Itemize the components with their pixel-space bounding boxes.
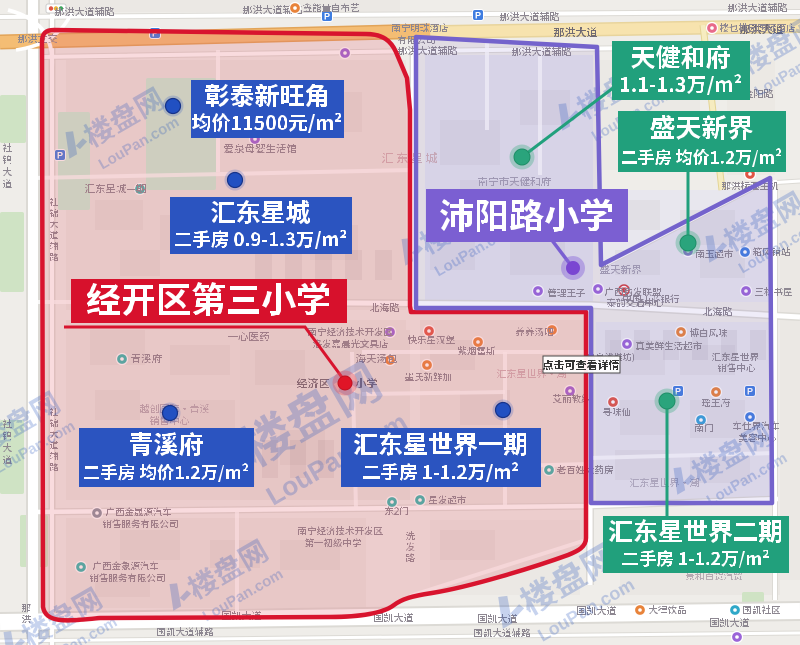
svg-text:P: P: [324, 12, 330, 22]
svg-text:P: P: [475, 11, 481, 21]
